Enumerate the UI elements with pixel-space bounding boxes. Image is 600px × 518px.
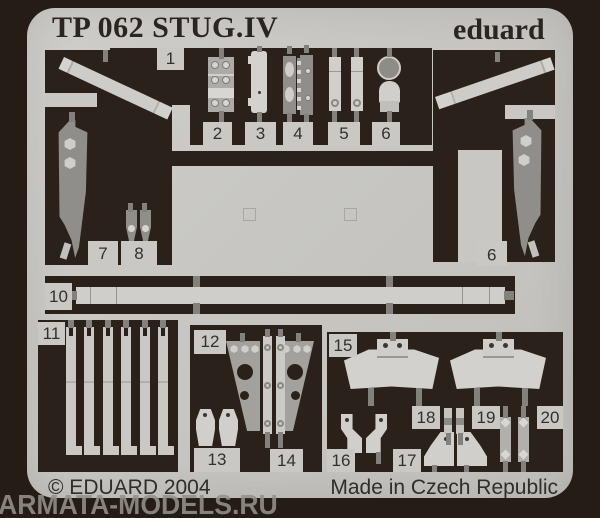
etch-line	[84, 381, 94, 383]
sprue-tab	[527, 110, 533, 120]
part-number: 6	[381, 124, 390, 144]
part-number: 13	[208, 450, 227, 470]
sprue-tab	[240, 333, 245, 342]
part-label-8: 8	[121, 241, 157, 266]
part-16-hole	[379, 418, 383, 422]
sprue-tab	[495, 52, 500, 62]
part-6-dome	[379, 81, 400, 103]
strip-division	[489, 287, 490, 304]
sprue-tab	[521, 461, 526, 472]
bracket-hole	[397, 343, 402, 348]
etch-region-rim-bar	[168, 151, 458, 166]
sprue-tab	[219, 48, 224, 59]
part-5-seam	[329, 71, 341, 72]
part-6-disc	[377, 56, 401, 80]
part-4-strip-right	[300, 55, 313, 115]
part-12-small-hole	[291, 391, 300, 400]
strip-hook	[141, 446, 156, 455]
part-label-15: 15	[329, 334, 357, 357]
hinge-ring	[277, 382, 284, 389]
part-number: 11	[43, 324, 61, 344]
bracket-hole	[383, 343, 388, 348]
sprue-tab	[69, 112, 75, 122]
sheet-bridge-left	[45, 93, 97, 107]
part-15-bracket	[483, 339, 514, 358]
sprue-tab	[193, 276, 200, 287]
part-label-4: 4	[283, 122, 313, 146]
part-number: 2	[213, 124, 222, 144]
part-label-13: 13	[194, 448, 240, 472]
bolt-dot	[222, 99, 230, 107]
sprue-tab	[257, 46, 262, 52]
part-18-strip	[456, 408, 464, 434]
sprue-tab	[265, 432, 270, 448]
part-number: 17	[398, 451, 417, 471]
part-number: 10	[49, 287, 68, 307]
part-18-strip	[444, 408, 452, 434]
part-5-ring	[353, 99, 361, 107]
bolt-dot	[222, 76, 230, 84]
part-12-large-hole	[237, 364, 253, 380]
part-number: 19	[477, 408, 496, 428]
sprue-tab	[416, 388, 422, 406]
part-13-hole	[203, 413, 207, 417]
part-11-strip	[66, 327, 76, 455]
sprue-tab	[387, 111, 392, 122]
sprue-tab	[86, 320, 92, 328]
part-label-5: 5	[328, 122, 360, 146]
part-number: 12	[201, 332, 220, 352]
hinge-ring	[277, 344, 284, 351]
etch-square-mark	[344, 208, 357, 221]
part-number: 14	[277, 451, 296, 471]
sprue-tab	[142, 203, 147, 212]
part-number: 3	[256, 124, 265, 144]
sprue-tab	[521, 406, 526, 418]
part-label-19: 19	[472, 406, 500, 429]
part-11-strip	[140, 327, 150, 455]
part-label-3: 3	[245, 122, 276, 146]
etch-slit	[69, 327, 73, 336]
part-label-9: 9	[477, 241, 507, 266]
sprue-tab	[105, 320, 111, 328]
part-label-1: 1	[157, 48, 184, 70]
sheet-title: TP 062 STUG.IV	[52, 11, 278, 45]
part-label-2: 2	[203, 122, 232, 146]
etch-slit	[161, 327, 165, 336]
part-number: 1	[166, 49, 175, 69]
part-label-20: 20	[537, 406, 563, 429]
sprue-tab	[503, 461, 508, 472]
part-number: 5	[339, 124, 348, 144]
sprue-tab	[332, 111, 337, 122]
strip-hook	[85, 446, 100, 455]
etch-line	[140, 381, 150, 383]
watermark-text: ARMATA-MODELS.RU	[0, 489, 278, 518]
strip-division	[116, 287, 117, 304]
part-3-tab-top	[248, 56, 252, 64]
part-4-oval-hole	[285, 87, 294, 102]
etch-slit	[106, 327, 110, 336]
part-16-hole	[345, 418, 349, 422]
sprue-tab	[278, 329, 283, 337]
sprue-tab	[128, 203, 133, 212]
part-8-rivet	[142, 225, 149, 232]
sprue-tab	[193, 303, 200, 314]
part-11-strip	[103, 327, 113, 455]
part-number: 4	[293, 124, 302, 144]
hinge-ring	[264, 344, 271, 351]
strip-division	[462, 287, 463, 304]
sprue-tab	[376, 452, 381, 464]
sprue-tab	[123, 320, 129, 328]
sprue-tab	[160, 320, 166, 328]
strip-division	[90, 287, 91, 304]
bracket-hole	[503, 343, 508, 348]
part-label-17: 17	[393, 449, 421, 472]
part-3-tab-bottom	[248, 98, 252, 106]
part-label-7: 7	[88, 241, 118, 266]
part-11-strip	[121, 327, 131, 455]
bolt-dot	[305, 68, 311, 74]
part-label-18: 18	[412, 406, 440, 429]
part-number: 20	[541, 408, 560, 428]
sprue-tab	[265, 329, 270, 337]
sprue-tab	[390, 332, 396, 341]
sprue-tab	[219, 111, 224, 122]
part-number: 9	[487, 244, 496, 264]
part-number: 8	[134, 244, 143, 264]
part-12-small-hole	[240, 391, 249, 400]
part-number: 18	[417, 408, 436, 428]
hinge-ring	[264, 420, 271, 427]
bracket-hole	[489, 343, 494, 348]
part-11-strip	[158, 327, 168, 455]
sprue-tab	[474, 388, 480, 406]
sprue-tab	[103, 50, 108, 62]
part-11-strip	[84, 327, 94, 455]
sprue-tab	[287, 113, 292, 122]
part-label-14: 14	[270, 449, 303, 472]
sprue-tab	[68, 320, 74, 328]
part-4-perforation	[297, 58, 301, 110]
sprue-tab	[278, 432, 283, 448]
part-3	[251, 51, 267, 113]
part-label-6: 6	[372, 122, 400, 146]
origin-text: Made in Czech Republic	[330, 476, 558, 500]
hinge-ring	[277, 420, 284, 427]
bolt-dot	[211, 76, 219, 84]
sprue-tab	[287, 46, 292, 54]
hinge-ring	[264, 382, 271, 389]
part-5-ring	[331, 99, 339, 107]
part-4-oval-hole	[285, 62, 294, 77]
etch-slit	[124, 327, 128, 336]
sprue-tab	[446, 433, 451, 445]
sprue-tab	[386, 276, 393, 287]
part-label-12: 12	[194, 330, 226, 354]
part-label-10: 10	[45, 283, 72, 310]
sprue-tab	[458, 433, 463, 445]
sprue-tab	[496, 332, 502, 341]
sprue-tab	[354, 48, 359, 57]
etch-line	[158, 381, 168, 383]
strip-hook	[159, 446, 174, 455]
part-17-hole	[465, 437, 469, 441]
bolt-dot	[211, 99, 219, 107]
sprue-tab	[296, 333, 301, 342]
sprue-tab	[368, 388, 374, 406]
part-2-band	[208, 88, 234, 98]
sprue-tab	[387, 48, 392, 57]
part-8-rivet	[128, 225, 135, 232]
sprue-tab	[304, 45, 309, 53]
sprue-tab	[386, 303, 393, 314]
part-13-hole	[226, 413, 230, 417]
bolt-dot	[222, 61, 230, 69]
part-number: 15	[334, 336, 353, 356]
etch-square-mark	[243, 208, 256, 221]
part-15-bracket	[377, 339, 408, 358]
part-5-seam	[351, 71, 363, 72]
etch-line	[121, 381, 131, 383]
sprue-tab	[504, 291, 514, 300]
sprue-tab	[464, 465, 469, 472]
part-label-11: 11	[38, 322, 65, 345]
part-12-large-hole	[287, 364, 303, 380]
strip-hook	[67, 446, 82, 455]
sprue-tab	[522, 388, 528, 406]
part-number: 7	[98, 244, 107, 264]
etch-slit	[87, 327, 91, 336]
sprue-tab	[304, 114, 309, 122]
etch-line	[66, 381, 76, 383]
etch-slit	[143, 327, 147, 336]
bolt-dot	[211, 61, 219, 69]
sprue-tab	[257, 112, 262, 122]
part-3-pin-hole	[258, 91, 261, 94]
strip-hook	[122, 446, 137, 455]
sprue-tab	[432, 465, 437, 472]
part-number: 16	[332, 451, 351, 471]
sprue-tab	[354, 111, 359, 122]
strip-hook	[104, 446, 119, 455]
brand-logo-text: eduard	[453, 13, 545, 47]
etch-line	[103, 381, 113, 383]
sprue-tab	[503, 406, 508, 418]
sprue-tab	[142, 320, 148, 328]
bolt-dot	[305, 95, 311, 101]
sprue-tab	[332, 48, 337, 57]
part-10-strip	[76, 287, 505, 304]
photo-etch-sheet-photo: TP 062 STUG.IV eduard	[0, 0, 600, 518]
part-label-16: 16	[327, 449, 355, 472]
